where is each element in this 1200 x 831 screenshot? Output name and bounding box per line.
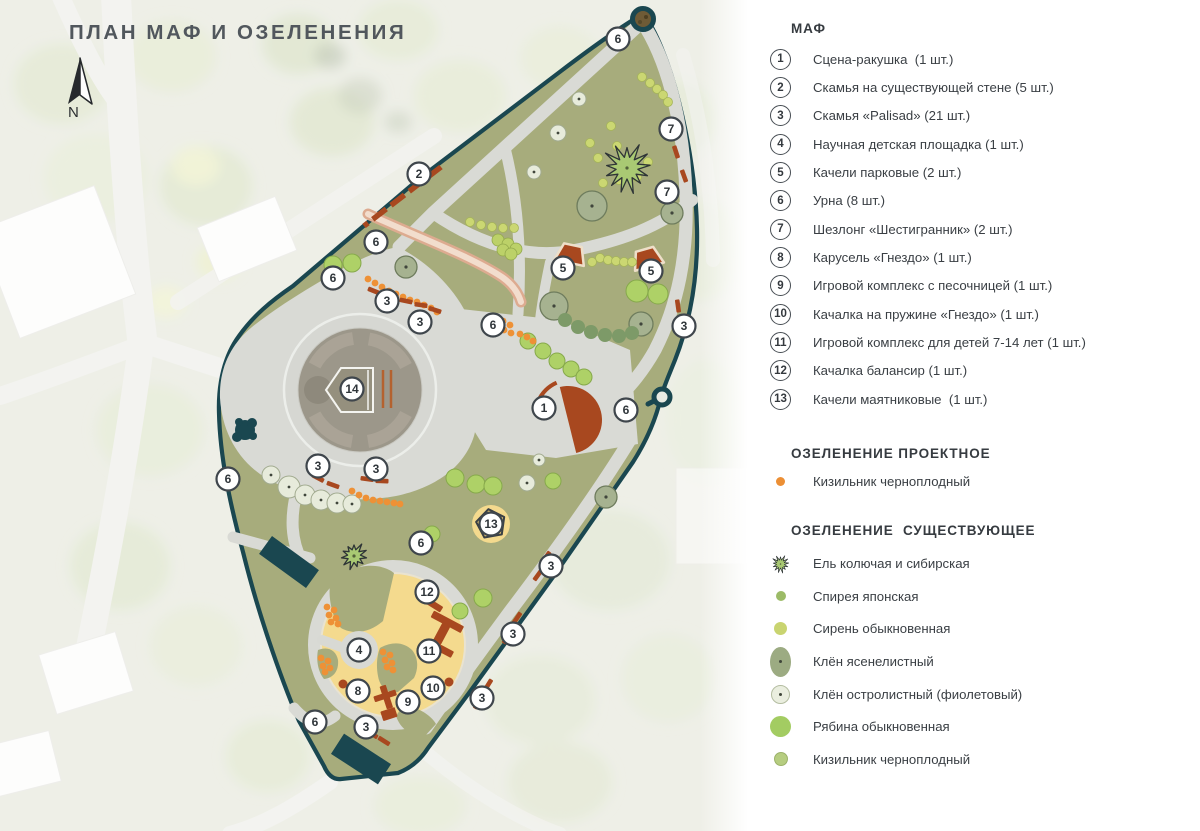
- map-marker-5: 5: [552, 257, 575, 280]
- legend-item-label: Скамья на существующей стене (5 шт.): [813, 80, 1054, 95]
- svg-text:9: 9: [405, 695, 412, 709]
- svg-text:4: 4: [356, 643, 363, 657]
- svg-text:6: 6: [373, 235, 380, 249]
- legend-maf-items: 1Сцена-ракушка (1 шт.)2Скамья на существ…: [748, 45, 1200, 413]
- legend-item-label: Игровой комплекс с песочницей (1 шт.): [813, 278, 1052, 293]
- svg-text:10: 10: [426, 681, 440, 695]
- legend-item-rowan: Рябина обыкновенная: [748, 710, 1200, 743]
- legend-item-label: Шезлонг «Шестигранник» (2 шт.): [813, 222, 1013, 237]
- legend-item-label: Качели парковые (2 шт.): [813, 165, 961, 180]
- map-marker-6: 6: [607, 28, 630, 51]
- legend-item-label: Карусель «Гнездо» (1 шт.): [813, 250, 972, 265]
- map-marker-3: 3: [409, 311, 432, 334]
- svg-text:1: 1: [541, 401, 548, 415]
- legend-item-label: Спирея японская: [813, 589, 919, 604]
- spruce-icon: [770, 543, 791, 585]
- map-marker-3: 3: [376, 290, 399, 313]
- legend-heading-projected: ОЗЕЛЕНЕНИЕ ПРОЕКТНОЕ: [791, 445, 1200, 462]
- svg-text:3: 3: [315, 459, 322, 473]
- legend-number-badge: 12: [770, 360, 791, 381]
- legend-item-maf-7: 7Шезлонг «Шестигранник» (2 шт.): [748, 215, 1200, 243]
- north-label: N: [68, 104, 79, 121]
- legend-number-badge: 5: [770, 162, 791, 183]
- legend-number-badge: 11: [770, 332, 791, 353]
- svg-text:2: 2: [416, 167, 423, 181]
- svg-text:12: 12: [420, 585, 434, 599]
- map-marker-4: 4: [348, 639, 371, 662]
- legend-existing-items: Ель колючая и сибирскаяСпирея японскаяСи…: [748, 547, 1200, 775]
- legend-item-label: Рябина обыкновенная: [813, 719, 950, 734]
- map-marker-6: 6: [482, 314, 505, 337]
- map-marker-8: 8: [347, 680, 370, 703]
- legend-item-label: Кизильник черноплодный: [813, 752, 970, 767]
- legend-number-badge: 1: [770, 49, 791, 70]
- svg-text:7: 7: [664, 185, 671, 199]
- legend-item-maf-4: 4Научная детская площадка (1 шт.): [748, 130, 1200, 158]
- legend-item-maf-5: 5Качели парковые (2 шт.): [748, 158, 1200, 186]
- svg-text:3: 3: [363, 720, 370, 734]
- legend-item-maf-10: 10Качалка на пружине «Гнездо» (1 шт.): [748, 300, 1200, 328]
- map-marker-7: 7: [660, 118, 683, 141]
- map-marker-6: 6: [304, 711, 327, 734]
- svg-text:5: 5: [648, 264, 655, 278]
- svg-text:6: 6: [418, 536, 425, 550]
- corner-knob: [633, 9, 654, 30]
- legend-item-label: Кизильник черноплодный: [813, 474, 970, 489]
- legend-item-maf-6: 6Урна (8 шт.): [748, 187, 1200, 215]
- svg-text:3: 3: [548, 559, 555, 573]
- legend-item-label: Клён остролистный (фиолетовый): [813, 687, 1022, 702]
- legend-item-label: Урна (8 шт.): [813, 193, 885, 208]
- legend-number-badge: 8: [770, 247, 791, 268]
- maple-norway-icon: [770, 685, 791, 704]
- legend-item-maf-8: 8Карусель «Гнездо» (1 шт.): [748, 243, 1200, 271]
- map-marker-9: 9: [397, 691, 420, 714]
- svg-text:3: 3: [384, 294, 391, 308]
- map-marker-1: 1: [533, 397, 556, 420]
- svg-text:3: 3: [681, 319, 688, 333]
- legend-item-maf-2: 2Скамья на существующей стене (5 шт.): [748, 73, 1200, 101]
- spirea-dot-icon: [770, 591, 791, 601]
- map-marker-3: 3: [365, 458, 388, 481]
- legend-heading-existing: ОЗЕЛЕНЕНИЕ СУЩЕСТВУЮЩЕЕ: [791, 522, 1200, 539]
- map-marker-3: 3: [355, 716, 378, 739]
- map-marker-6: 6: [615, 399, 638, 422]
- legend-item-maf-1: 1Сцена-ракушка (1 шт.): [748, 45, 1200, 73]
- plan-sheet: N 627766336355141663313631234118109363 П…: [0, 0, 1200, 831]
- legend-item-maf-13: 13Качели маятниковые (1 шт.): [748, 385, 1200, 413]
- svg-text:6: 6: [330, 271, 337, 285]
- rowan-icon: [770, 716, 791, 737]
- legend-number-badge: 3: [770, 105, 791, 126]
- maple-ash-icon: [770, 647, 791, 677]
- legend-item-cotoneaster: Кизильник черноплодный: [748, 743, 1200, 776]
- map-marker-11: 11: [418, 640, 441, 663]
- legend-item-label: Качели маятниковые (1 шт.): [813, 392, 987, 407]
- legend-item-maf-9: 9Игровой комплекс с песочницей (1 шт.): [748, 272, 1200, 300]
- svg-text:13: 13: [484, 517, 498, 531]
- svg-text:6: 6: [225, 472, 232, 486]
- svg-text:7: 7: [668, 122, 675, 136]
- legend-item-label: Качалка на пружине «Гнездо» (1 шт.): [813, 307, 1039, 322]
- legend-projected-items: Кизильник черноплодный: [748, 468, 1200, 494]
- svg-text:6: 6: [615, 32, 622, 46]
- svg-text:3: 3: [479, 691, 486, 705]
- map-marker-3: 3: [502, 623, 525, 646]
- map-marker-6: 6: [410, 532, 433, 555]
- svg-text:6: 6: [312, 715, 319, 729]
- legend-item-spirea-dot: Спирея японская: [748, 580, 1200, 613]
- svg-text:5: 5: [560, 261, 567, 275]
- legend-number-badge: 7: [770, 219, 791, 240]
- legend-number-badge: 10: [770, 304, 791, 325]
- svg-text:14: 14: [345, 382, 359, 396]
- map-marker-6: 6: [365, 231, 388, 254]
- svg-text:6: 6: [490, 318, 497, 332]
- svg-text:3: 3: [510, 627, 517, 641]
- legend-item-maf-11: 11Игровой комплекс для детей 7-14 лет (1…: [748, 328, 1200, 356]
- legend-panel: МАФ 1Сцена-ракушка (1 шт.)2Скамья на сущ…: [748, 0, 1200, 831]
- map-marker-3: 3: [673, 315, 696, 338]
- legend-item-maple-norway: Клён остролистный (фиолетовый): [748, 678, 1200, 711]
- legend-item-label: Научная детская площадка (1 шт.): [813, 137, 1024, 152]
- legend-item-label: Сцена-ракушка (1 шт.): [813, 52, 953, 67]
- legend-item-label: Клён ясенелистный: [813, 654, 934, 669]
- legend-number-badge: 13: [770, 389, 791, 410]
- cotoneaster-icon: [770, 752, 791, 766]
- legend-item-label: Игровой комплекс для детей 7-14 лет (1 ш…: [813, 335, 1086, 350]
- legend-heading-maf: МАФ: [791, 0, 1200, 37]
- legend-item-label: Скамья «Palisad» (21 шт.): [813, 108, 970, 123]
- panel-fade: [700, 0, 748, 831]
- map-marker-6: 6: [217, 468, 240, 491]
- legend-number-badge: 2: [770, 77, 791, 98]
- legend-number-badge: 6: [770, 190, 791, 211]
- map-marker-14: 14: [341, 378, 364, 401]
- svg-text:6: 6: [623, 403, 630, 417]
- page-title: ПЛАН МАФ И ОЗЕЛЕНЕНИЯ: [69, 21, 406, 45]
- legend-number-badge: 4: [770, 134, 791, 155]
- gate-ring: [654, 389, 670, 405]
- svg-text:11: 11: [423, 644, 436, 658]
- legend-item-maf-12: 12Качалка балансир (1 шт.): [748, 357, 1200, 385]
- legend-item-orange-dot: Кизильник черноплодный: [748, 468, 1200, 494]
- orange-dot-icon: [770, 477, 791, 486]
- map-marker-3: 3: [540, 555, 563, 578]
- lilac-dot-icon: [770, 622, 791, 635]
- legend-item-maple-ash: Клён ясенелистный: [748, 645, 1200, 678]
- map-marker-12: 12: [416, 581, 439, 604]
- site-plan-svg: N 627766336355141663313631234118109363: [0, 0, 748, 831]
- map-marker-13: 13: [480, 513, 503, 536]
- legend-item-spruce: Ель колючая и сибирская: [748, 547, 1200, 580]
- legend-item-label: Ель колючая и сибирская: [813, 556, 970, 571]
- map-marker-3: 3: [471, 687, 494, 710]
- svg-text:3: 3: [417, 315, 424, 329]
- map-marker-10: 10: [422, 677, 445, 700]
- legend-item-lilac-dot: Сирень обыкновенная: [748, 613, 1200, 646]
- svg-text:3: 3: [373, 462, 380, 476]
- legend-item-label: Качалка балансир (1 шт.): [813, 363, 967, 378]
- map-marker-3: 3: [307, 455, 330, 478]
- map-marker-2: 2: [408, 163, 431, 186]
- svg-text:8: 8: [355, 684, 362, 698]
- legend-item-maf-3: 3Скамья «Palisad» (21 шт.): [748, 102, 1200, 130]
- site-plan-map: N 627766336355141663313631234118109363: [0, 0, 748, 831]
- map-marker-7: 7: [656, 181, 679, 204]
- map-marker-5: 5: [640, 260, 663, 283]
- legend-number-badge: 9: [770, 275, 791, 296]
- legend-item-label: Сирень обыкновенная: [813, 621, 950, 636]
- art-object-blob: [232, 418, 257, 442]
- map-marker-6: 6: [322, 267, 345, 290]
